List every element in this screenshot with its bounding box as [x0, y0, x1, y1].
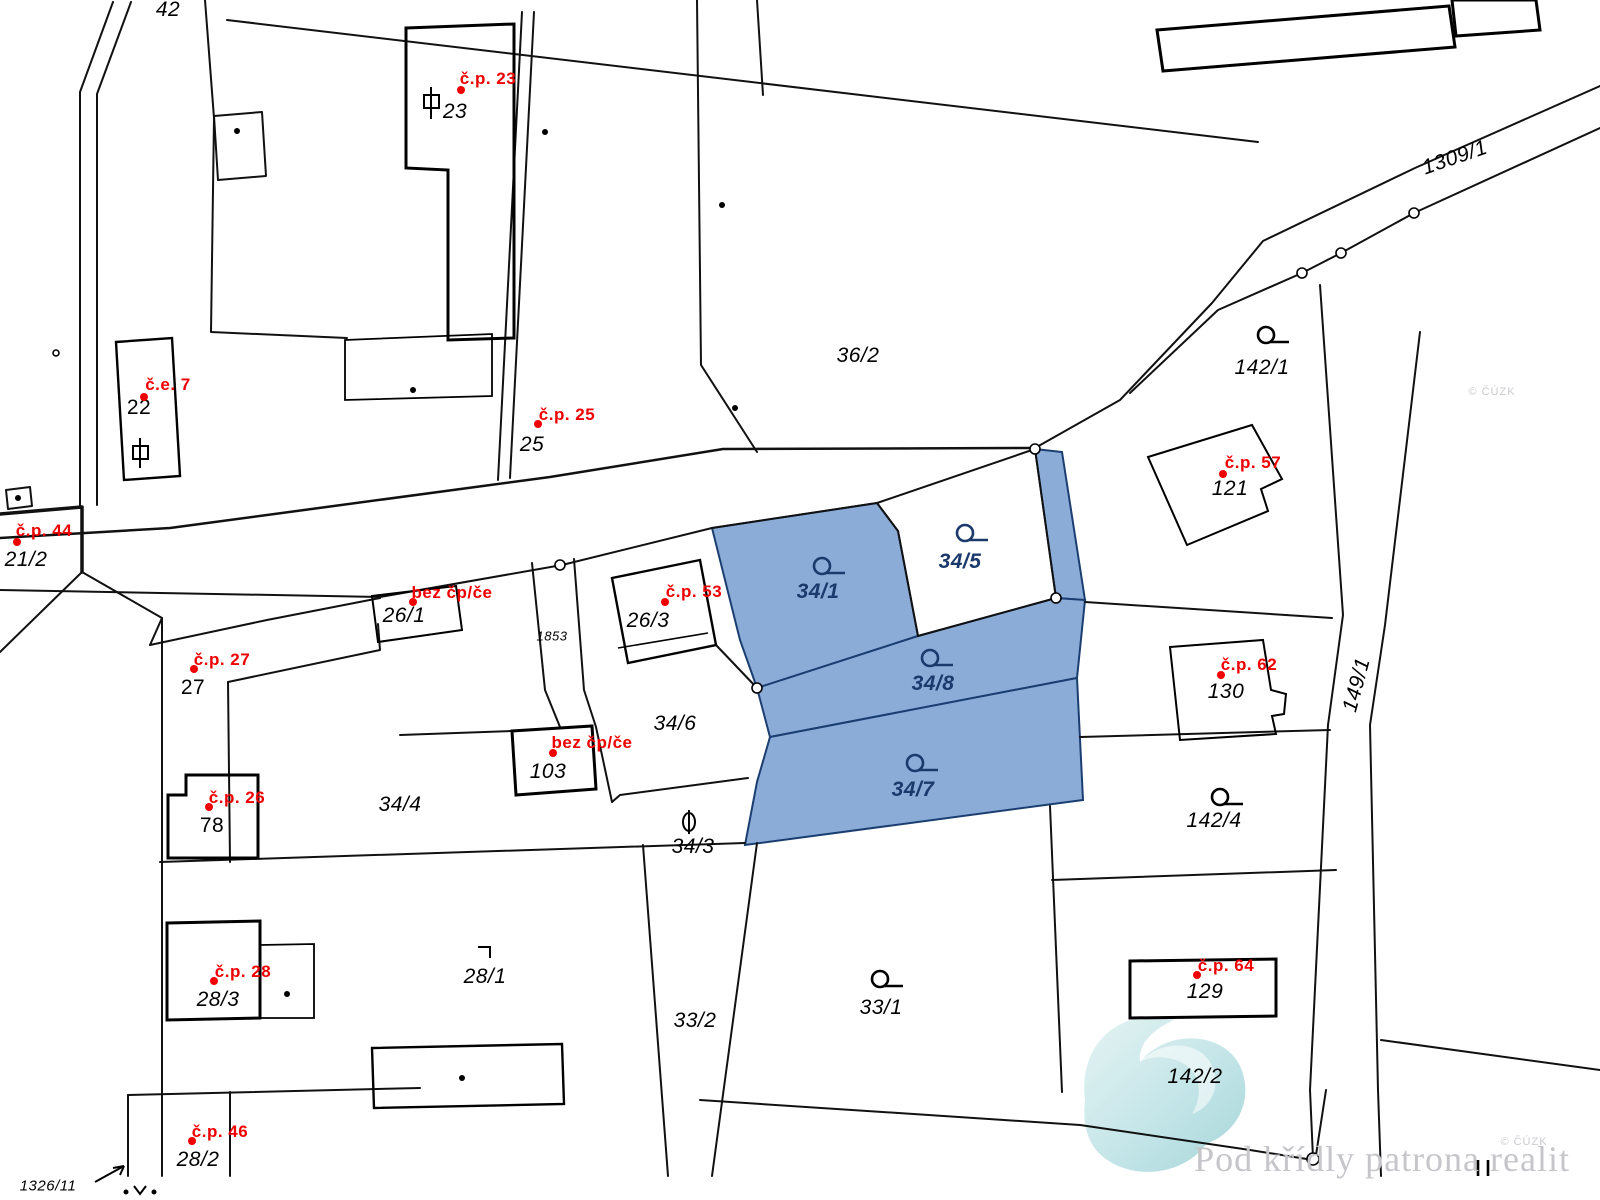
building-south — [372, 1044, 564, 1108]
corner-symbol-28-1 — [478, 947, 490, 958]
building-129 — [1130, 959, 1276, 1018]
chapel-symbol-23 — [424, 87, 439, 119]
building-28-3 — [167, 921, 260, 1020]
arrow-1326 — [95, 1166, 124, 1182]
highlighted-parcels — [712, 449, 1085, 845]
building-103 — [512, 726, 596, 795]
building-23-annex — [345, 334, 492, 400]
survey-point-icons — [53, 208, 1419, 1165]
check-symbol — [125, 1186, 156, 1194]
cadastral-map: 42232221/22536/21309/126/1185326/32734/6… — [0, 0, 1600, 1200]
chapel-symbol-22 — [133, 438, 148, 468]
building-26-3 — [612, 560, 716, 663]
building-28-3-annex — [260, 944, 314, 1018]
building-26-3-inner — [618, 633, 708, 648]
theta-symbol — [683, 810, 695, 834]
building-23 — [406, 24, 514, 340]
building-130 — [1170, 640, 1286, 740]
building-121 — [1148, 425, 1282, 545]
map-canvas — [0, 0, 1600, 1200]
building-dot-icons — [15, 128, 738, 1081]
parcel-34-8-sliver[interactable] — [1035, 449, 1085, 600]
building-topright-2 — [1452, 0, 1540, 36]
building-26-1 — [372, 586, 462, 642]
watermark-text: Pod křídly patrona realit — [1194, 1138, 1570, 1180]
building-topright-1 — [1157, 6, 1455, 71]
building-78 — [168, 775, 258, 858]
